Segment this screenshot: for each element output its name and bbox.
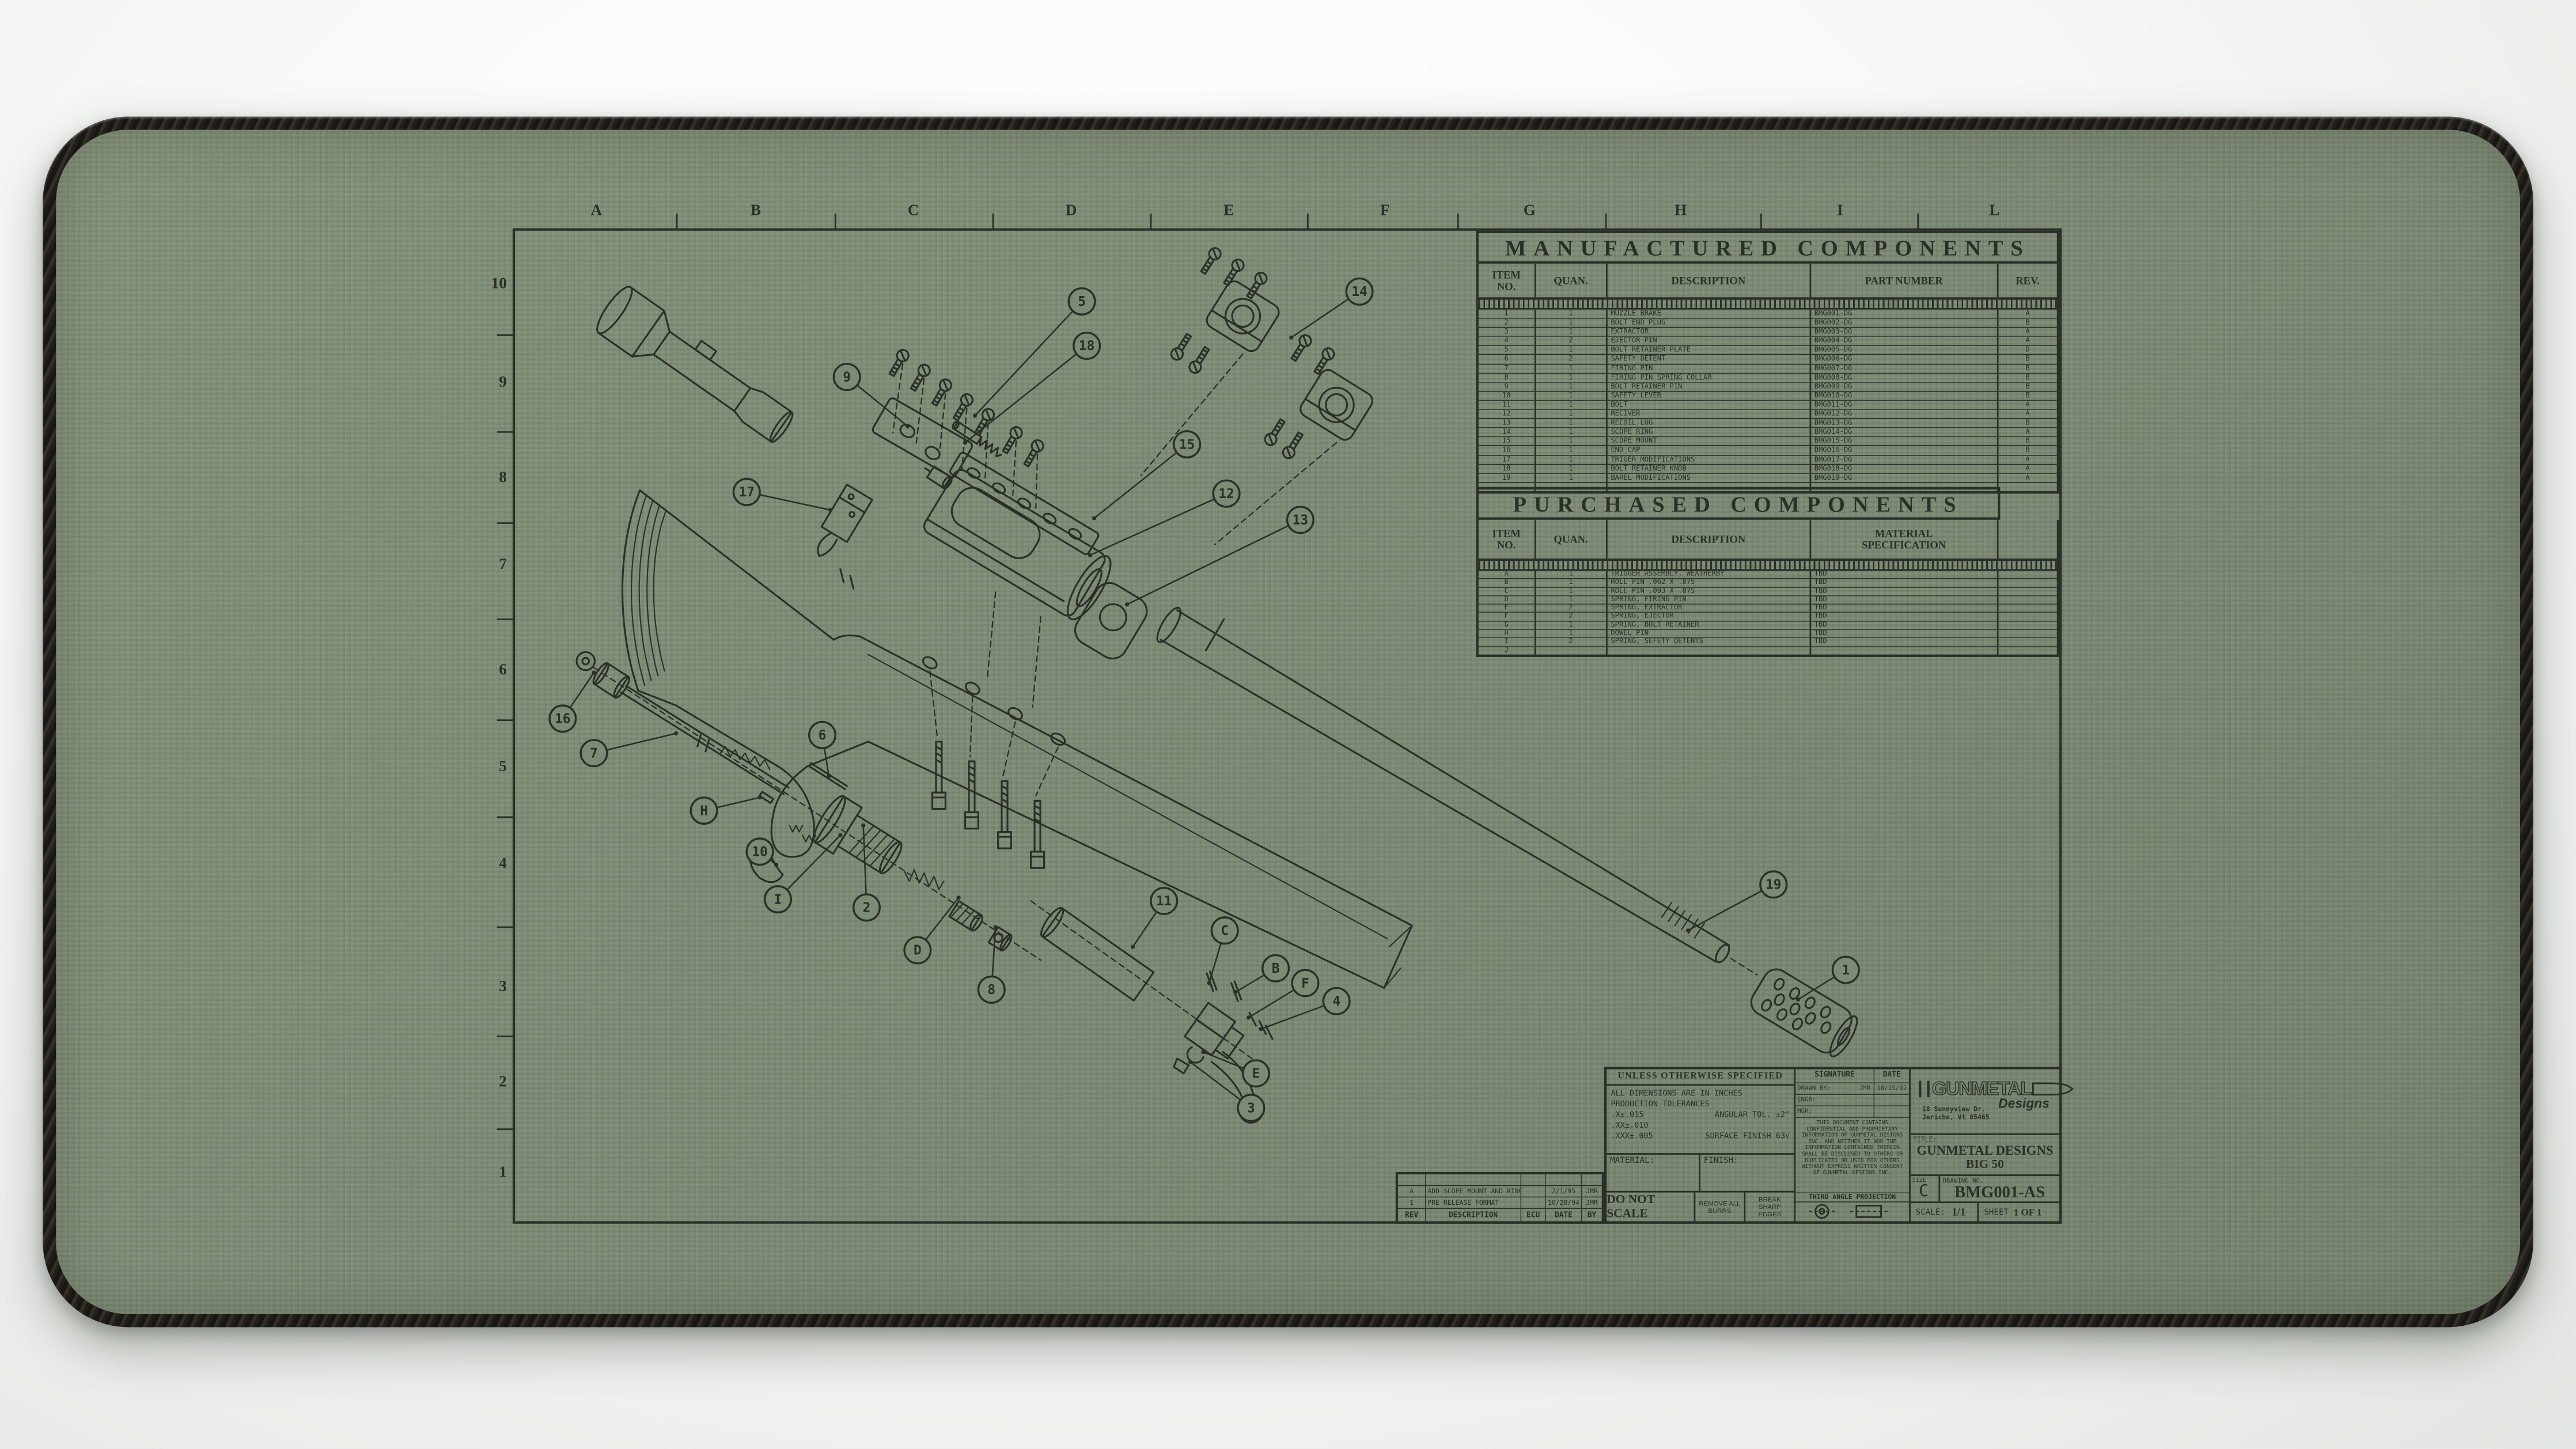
retainer-parts [922,420,1003,490]
table-cell [1608,647,1811,654]
mount-screws [887,348,1045,509]
revision-row: 1PRE RELEASE FORMAT10/28/94JMR [1398,1197,1602,1209]
table-cell: 1 [1536,328,1607,336]
table-cell: 18 [1479,465,1536,473]
table-cell: 1 [1536,373,1607,381]
size-cell: SIZE C [1911,1176,1940,1201]
scale-cell: SCALE:1/1 [1911,1203,1979,1221]
trigger-assembly-part [808,484,873,589]
table-cell: 1 [1536,419,1607,427]
table-row: C1ROLL PIN .093 X .875TBD [1479,587,2057,596]
table-row: 91BOLT RETAINER PINBMG009-DGB [1479,382,2057,392]
grid-tick [1917,214,1919,229]
gunmetal-logo: GUNMETAL Designs 18 Sunnyview Dr. Jerich… [1911,1069,2059,1135]
table-row: E2SPRING, EXTRACTORTBD [1479,605,2057,613]
table-cell: 12 [1479,410,1536,418]
manufactured-table-title: MANUFACTURED COMPONENTS [1476,231,2059,264]
table-cell: 9 [1479,382,1536,390]
tolerance-notes: ALL DIMENSIONS ARE IN INCHES PRODUCTION … [1607,1086,1794,1155]
table-cell: 17 [1479,456,1536,464]
table-cell: 1 [1536,437,1607,445]
table-row: D1SPRING, FIRING PINTBD [1479,596,2057,605]
table-row: A1TRIGGER ASSEMBLY, WEATHERBYTBD [1479,571,2057,579]
table-cell: 8 [1479,373,1536,381]
table-cell: B [1998,392,2056,400]
revision-cell: PRE RELEASE FORMAT [1426,1197,1521,1208]
manufactured-components-table: MANUFACTURED COMPONENTS ITEM NO.QUAN.DES… [1476,231,2059,494]
table-cell: BOLT RETAINER PIN [1608,382,1811,390]
table-cell: B [1479,579,1536,587]
table-cell: 1 [1536,465,1607,473]
table-cell: BMG004-DG [1811,337,1998,345]
table-row: 121RECIVERBMG012-DGA [1479,410,2057,419]
grid-tick [497,619,515,620]
grid-number: 4 [478,855,507,873]
table-cell: A [1998,428,2056,436]
hatch-separator [1476,299,2059,309]
table-cell: SPRING, EJECTOR [1608,613,1811,621]
table-cell [1998,571,2056,578]
table-cell: EJECTOR PIN [1608,337,1811,345]
grid-tick [992,214,994,229]
table-cell: RECOIL LUG [1608,419,1811,427]
table-cell: BMG017-DG [1811,456,1998,464]
table-cell: 10 [1479,392,1536,400]
scope-part [592,283,801,453]
grid-number: 9 [478,374,507,392]
table-row: G1SPRING, BOLT RETAINERTBD [1479,621,2057,630]
column-header: ITEM NO. [1479,264,1536,297]
table-cell: BMG002-DG [1811,318,1998,327]
table-cell: 6 [1479,355,1536,363]
column-header: QUAN. [1536,264,1607,297]
table-cell: RECIVER [1608,410,1811,418]
grid-number: 10 [478,275,507,293]
table-row: 31EXTRACTORBMG003-DGA [1479,328,2057,337]
table-cell: SPRING, BOLT RETAINER [1608,621,1811,629]
bolt-internals [577,652,1041,960]
table-cell [1998,630,2056,638]
table-cell: 14 [1479,428,1536,436]
column-header: ITEM NO. [1479,520,1536,559]
grid-tick [497,927,515,928]
table-cell: TBD [1811,605,1998,612]
grid-letter: D [1055,202,1088,220]
revision-cell [1398,1174,1426,1185]
table-cell: 1 [1536,630,1607,638]
title-cell: TITLE: GUNMETAL DESIGNS BIG 50 [1911,1135,2059,1176]
table-cell: 19 [1479,473,1536,481]
stock-part [622,490,1412,988]
table-cell: A [1998,401,2056,409]
table-cell: 3 [1479,328,1536,336]
table-row: 131RECOIL LUGBMG013-DGB [1479,419,2057,428]
table-cell: BOLT RETAINER PLATE [1608,346,1811,354]
revision-cell: JMR [1582,1186,1602,1197]
table-cell [1811,647,1998,654]
table-row: 181BOLT RETAINER KNOBBMG018-DGA [1479,465,2057,474]
scope-base-part [949,452,1100,556]
revision-row [1398,1174,1602,1186]
table-cell: TBD [1811,571,1998,578]
purchased-table-body: A1TRIGGER ASSEMBLY, WEATHERBYTBDB1ROLL P… [1476,571,2059,657]
break-edges-label: BREAK SHARP EDGES [1745,1193,1794,1222]
table-cell: 1 [1536,365,1607,373]
table-cell: 1 [1479,310,1536,318]
grid-tick [1760,214,1762,229]
table-cell: 5 [1479,346,1536,354]
table-row: 161END CAPBMG016-DGB [1479,446,2057,456]
table-cell: FIRING PIN SPRING COLLAR [1608,373,1811,381]
table-cell: BMG008-DG [1811,373,1998,381]
grid-letter: F [1369,202,1401,220]
grid-letter: G [1513,202,1546,220]
action-screws [933,742,1044,868]
grid-tick [1150,214,1151,229]
table-cell: END CAP [1608,446,1811,454]
table-row: I2SPRING, SEFETY DETENTSTBD [1479,639,2057,647]
grid-tick [1605,214,1607,229]
table-cell: 1 [1536,596,1607,604]
grid-number: 5 [478,758,507,776]
grid-number: 3 [478,978,507,996]
table-cell: B [1998,318,2056,327]
table-cell: J [1479,647,1536,654]
column-header: MATERIAL SPECIFICATION [1811,520,1998,559]
table-cell: BMG016-DG [1811,446,1998,454]
table-row: 42EJECTOR PINBMG004-DGA [1479,337,2057,346]
table-cell: 1 [1536,446,1607,454]
table-cell: BMG011-DG [1811,401,1998,409]
table-cell: 4 [1479,337,1536,345]
drawn-by-row: DRAWN BY:JMR10/15/92 [1795,1083,1909,1095]
table-cell: 1 [1536,473,1607,481]
signature-header: SIGNATUREDATE [1795,1069,1909,1083]
table-cell: C [1479,587,1536,595]
table-cell: SPRING, FIRING PIN [1608,596,1811,604]
table-cell: 1 [1536,579,1607,587]
purchased-components-table: PURCHASED COMPONENTS ITEM NO.QUAN.DESCRI… [1476,487,2059,657]
table-cell: B [1998,446,2056,454]
table-cell: BMG003-DG [1811,328,1998,336]
grid-number: 7 [478,556,507,574]
table-cell: A [1998,456,2056,464]
grid-tick [497,522,515,524]
logo-wordmark: GUNMETAL [1932,1078,2031,1100]
revision-table: AADD SCOPE MOUNT AND RINGS2/1/95JMR1PRE … [1396,1172,1604,1224]
grid-letter: B [739,202,772,220]
table-cell: I [1479,639,1536,646]
table-row: 171TRIGER MODIFICATIONSBMG017-DGA [1479,456,2057,465]
hatch-separator [1476,561,2059,571]
confidentiality-note: THIS DOCUMENT CONTAINS CONFIDENTIAL AND … [1795,1118,1909,1193]
recoil-lug-part [1070,578,1152,664]
mgr-row: MGR: [1795,1106,1909,1118]
table-cell [1998,596,2056,604]
table-row: H1DOWEL PINTBD [1479,630,2057,639]
table-cell: SCOPE RING [1608,428,1811,436]
company-address: 18 Sunnyview Dr. Jericho, Vt 05465 [1922,1105,1990,1122]
table-cell: BMG006-DG [1811,355,1998,363]
table-cell: FIRING PIN [1608,365,1811,373]
table-cell: SPRING, EXTRACTOR [1608,605,1811,612]
table-row: 11MUZZLE BRAKEBMG001-DGA [1479,310,2057,319]
table-cell: TBD [1811,639,1998,646]
grid-letter: H [1664,202,1697,220]
table-cell: BOLT END PLUG [1608,318,1811,327]
table-cell: BAREL MODIFICATIONS [1608,473,1811,481]
table-cell: BOLT [1608,401,1811,409]
table-cell: 1 [1536,428,1607,436]
third-angle-projection: THIRD ANGLE PROJECTION [1795,1193,1909,1221]
sheet-cell: SHEET1 OF 1 [1979,1203,2059,1221]
table-cell: 2 [1536,613,1607,621]
table-cell: A [1998,465,2056,473]
table-cell: TBD [1811,579,1998,587]
table-cell: E [1479,605,1536,612]
drawing-subtitle: BIG 50 [1911,1158,2059,1171]
table-cell: SAFETY DETENT [1608,355,1811,363]
table-cell: 2 [1536,605,1607,612]
grid-letter: I [1824,202,1857,220]
table-cell: 1 [1536,392,1607,400]
drawing-title: GUNMETAL DESIGNS [1911,1144,2059,1158]
table-cell: 13 [1479,419,1536,427]
scope-ring-part [1141,246,1376,545]
revision-cell: 10/28/94 [1546,1197,1582,1208]
table-cell: 2 [1536,639,1607,646]
revision-cell: ADD SCOPE MOUNT AND RINGS [1426,1186,1521,1197]
table-cell: 16 [1479,446,1536,454]
revision-cell: 1 [1398,1197,1426,1208]
table-row: 62SAFETY DETENTBMG006-DGB [1479,355,2057,365]
table-cell: ROLL PIN .093 X .875 [1608,587,1811,595]
title-block: UNLESS OTHERWISE SPECIFIED ALL DIMENSION… [1604,1067,2062,1223]
table-cell: G [1479,621,1536,629]
table-cell [1998,639,2056,646]
table-cell: A [1479,571,1536,578]
table-cell: BMG010-DG [1811,392,1998,400]
do-not-scale-label: DO NOT SCALE [1607,1193,1695,1222]
revision-cell [1582,1174,1602,1185]
table-cell: B [1998,373,2056,381]
table-row: 21BOLT END PLUGBMG002-DGB [1479,318,2057,328]
table-cell: 1 [1536,621,1607,629]
engr-row: ENGR: [1795,1095,1909,1106]
table-cell [1536,647,1607,654]
table-cell: 2 [1536,337,1607,345]
table-cell: F [1479,613,1536,621]
table-cell: D [1479,596,1536,604]
table-cell: D [1998,346,2056,354]
table-cell: 1 [1536,587,1607,595]
table-cell: A [1998,328,2056,336]
grid-tick [497,719,515,721]
grid-tick [497,816,515,818]
table-cell: TBD [1811,630,1998,638]
table-row: 51BOLT RETAINER PLATEBMG005-DGD [1479,346,2057,355]
grid-letter: C [897,202,930,220]
table-cell: 1 [1536,571,1607,578]
column-header: DESCRIPTION [1608,520,1811,559]
table-cell: BOLT RETAINER KNOB [1608,465,1811,473]
table-cell: 1 [1536,310,1607,318]
table-row: 101SAFETY LEVERBMG010-DGB [1479,392,2057,401]
table-cell: 7 [1479,365,1536,373]
table-cell: 1 [1536,346,1607,354]
table-cell [1998,587,2056,595]
logo-designs-text: Designs [1998,1097,2050,1112]
table-cell: SCOPE MOUNT [1608,437,1811,445]
revision-cell [1546,1174,1582,1185]
table-cell: BMG012-DG [1811,410,1998,418]
table-cell: TBD [1811,596,1998,604]
product-photo: ABCDEFGHIL 10987654321 [0,0,2576,1448]
table-cell: 1 [1536,456,1607,464]
grid-number: 6 [478,661,507,679]
table-cell: TBD [1811,613,1998,621]
column-header: DESCRIPTION [1608,264,1811,297]
table-cell [1998,613,2056,621]
table-cell: 2 [1479,318,1536,327]
bolt-handle-assembly [1031,901,1272,1122]
grid-tick [497,1035,515,1037]
table-cell: A [1998,473,2056,481]
blueprint-sheet: ABCDEFGHIL 10987654321 [513,202,2062,1224]
table-cell: A [1998,337,2056,345]
table-cell: 11 [1479,401,1536,409]
table-cell: A [1998,410,2056,418]
table-row: 151SCOPE MOUNTBMG015-DGB [1479,437,2057,446]
table-cell: BMG019-DG [1811,473,1998,481]
table-cell: B [1998,382,2056,390]
table-row: 111BOLTBMG011-DGA [1479,401,2057,410]
table-cell [1998,605,2056,612]
grid-tick [676,214,678,229]
logo-bars-icon [1919,1080,1930,1097]
table-cell: 1 [1536,318,1607,327]
grid-tick [835,214,836,229]
drawing-number-cell: DRAWING NO. BMG001-AS [1940,1176,2059,1201]
muzzle-brake-part [1747,965,1863,1061]
table-cell: BMG014-DG [1811,428,1998,436]
revision-cell: 2/1/95 [1546,1186,1582,1197]
revision-row: AADD SCOPE MOUNT AND RINGS2/1/95JMR [1398,1186,1602,1197]
grid-letter: L [1978,202,2011,220]
revision-cell [1521,1197,1546,1208]
table-cell: TRIGGER ASSEMBLY, WEATHERBY [1608,571,1811,578]
table-cell: H [1479,630,1536,638]
table-row: 71FIRING PINBMG007-DGB [1479,365,2057,374]
table-row: 141SCOPE RINGBMG014-DGA [1479,428,2057,437]
table-cell: BMG018-DG [1811,465,1998,473]
grid-number: 2 [478,1074,507,1091]
revision-cell: JMR [1582,1197,1602,1208]
column-header: PART NUMBER [1811,264,1998,297]
table-cell: TBD [1811,587,1998,595]
table-row: B1ROLL PIN .062 X .875TBD [1479,579,2057,588]
table-cell: 1 [1536,410,1607,418]
table-cell: 15 [1479,437,1536,445]
revision-cell [1426,1174,1521,1185]
table-cell: TBD [1811,621,1998,629]
table-row: J [1479,647,2057,654]
table-cell: ROLL PIN .062 X .875 [1608,579,1811,587]
grid-letter: A [580,202,613,220]
table-cell: A [1998,310,2056,318]
table-cell: SPRING, SEFETY DETENTS [1608,639,1811,646]
grid-number: 1 [478,1164,507,1182]
drawing-border: 10987654321 [513,228,2062,1223]
table-cell: SAFETY LEVER [1608,392,1811,400]
table-cell: DOWEL PIN [1608,630,1811,638]
remove-burrs-label: REMOVE ALL BURRS [1695,1193,1745,1222]
table-cell [1998,647,2056,654]
table-cell: B [1998,419,2056,427]
table-cell: BMG005-DG [1811,346,1998,354]
purchased-table-title: PURCHASED COMPONENTS [1476,487,2001,520]
grid-number: 8 [478,469,507,487]
table-cell: TRIGER MODIFICATIONS [1608,456,1811,464]
column-header: REV. [1998,264,2056,297]
receiver-part [921,467,1118,625]
manufactured-table-body: 11MUZZLE BRAKEBMG001-DGA21BOLT END PLUGB… [1476,310,2059,494]
bullet-icon [2031,1080,2074,1097]
revision-header: REVDESCRIPTIONECUDATEBY [1398,1209,1602,1223]
grid-tick [1307,214,1309,229]
table-cell [1998,621,2056,629]
table-cell: BMG007-DG [1811,365,1998,373]
revision-cell: A [1398,1186,1426,1197]
column-header [1998,520,2056,559]
table-cell: BMG009-DG [1811,382,1998,390]
table-row: F2SPRING, EJECTORTBD [1479,613,2057,622]
grid-tick [1457,214,1459,229]
projection-symbol-icon [1807,1203,1897,1220]
column-header: QUAN. [1536,520,1607,559]
table-row: 191BAREL MODIFICATIONSBMG019-DGA [1479,473,2057,483]
table-cell: EXTRACTOR [1608,328,1811,336]
table-cell [1998,579,2056,587]
table-cell: B [1998,355,2056,363]
barrel-part [1153,605,1757,975]
grid-tick [497,334,515,336]
table-cell: 2 [1536,355,1607,363]
table-cell: MUZZLE BRAKE [1608,310,1811,318]
table-cell: B [1998,365,2056,373]
table-cell: B [1998,437,2056,445]
table-row: 81FIRING PIN SPRING COLLARBMG008-DGB [1479,373,2057,382]
table-cell: 1 [1536,382,1607,390]
table-cell: BMG013-DG [1811,419,1998,427]
material-finish-cells: MATERIAL: FINISH: [1607,1155,1794,1193]
grid-letter: E [1213,202,1245,220]
grid-tick [497,431,515,433]
table-cell: 1 [1536,401,1607,409]
table-cell: BMG015-DG [1811,437,1998,445]
unless-otherwise-label: UNLESS OTHERWISE SPECIFIED [1607,1069,1794,1086]
revision-cell [1521,1174,1546,1185]
drawing-number: BMG001-AS [1940,1184,2059,1203]
revision-cell [1521,1186,1546,1197]
table-cell: BMG001-DG [1811,310,1998,318]
grid-tick [497,1128,515,1130]
